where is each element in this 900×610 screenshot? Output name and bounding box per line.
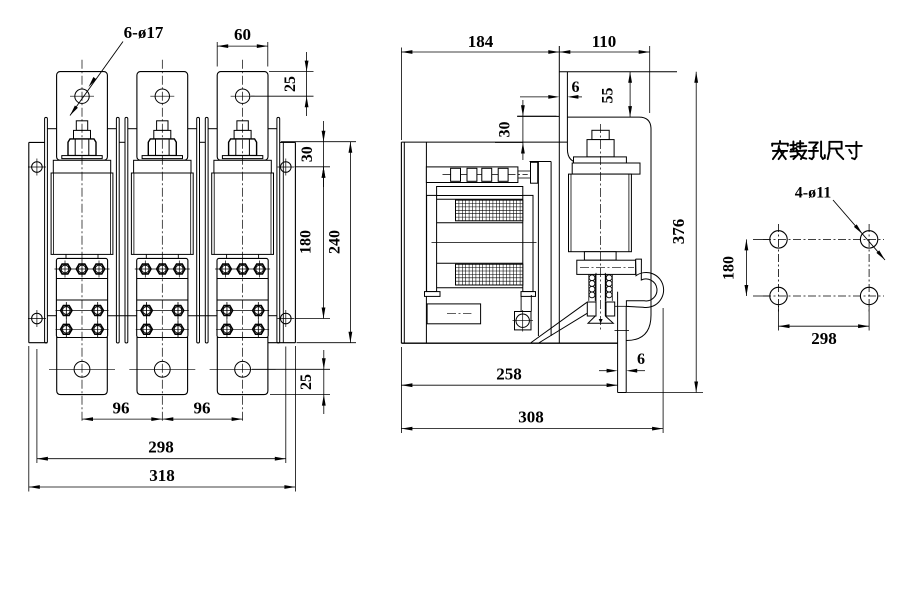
svg-text:6-ø17: 6-ø17 — [124, 23, 164, 42]
svg-text:180: 180 — [721, 256, 738, 280]
svg-text:376: 376 — [669, 219, 688, 245]
svg-text:308: 308 — [518, 408, 544, 427]
svg-text:96: 96 — [194, 399, 211, 418]
svg-text:25: 25 — [298, 374, 315, 390]
svg-text:60: 60 — [234, 25, 251, 44]
svg-text:180: 180 — [298, 230, 315, 254]
svg-text:30: 30 — [497, 122, 514, 138]
svg-text:6: 6 — [572, 79, 580, 96]
svg-text:4-ø11: 4-ø11 — [795, 185, 831, 202]
svg-text:298: 298 — [148, 438, 174, 457]
svg-text:96: 96 — [113, 399, 130, 418]
svg-text:6: 6 — [637, 351, 645, 368]
svg-text:240: 240 — [327, 230, 344, 254]
svg-text:184: 184 — [468, 32, 494, 51]
svg-text:298: 298 — [811, 329, 837, 348]
svg-text:55: 55 — [600, 88, 617, 104]
svg-text:110: 110 — [592, 32, 617, 51]
svg-text:258: 258 — [496, 365, 522, 384]
svg-text:318: 318 — [149, 466, 175, 485]
svg-text:25: 25 — [282, 76, 299, 92]
svg-text:30: 30 — [299, 146, 316, 162]
